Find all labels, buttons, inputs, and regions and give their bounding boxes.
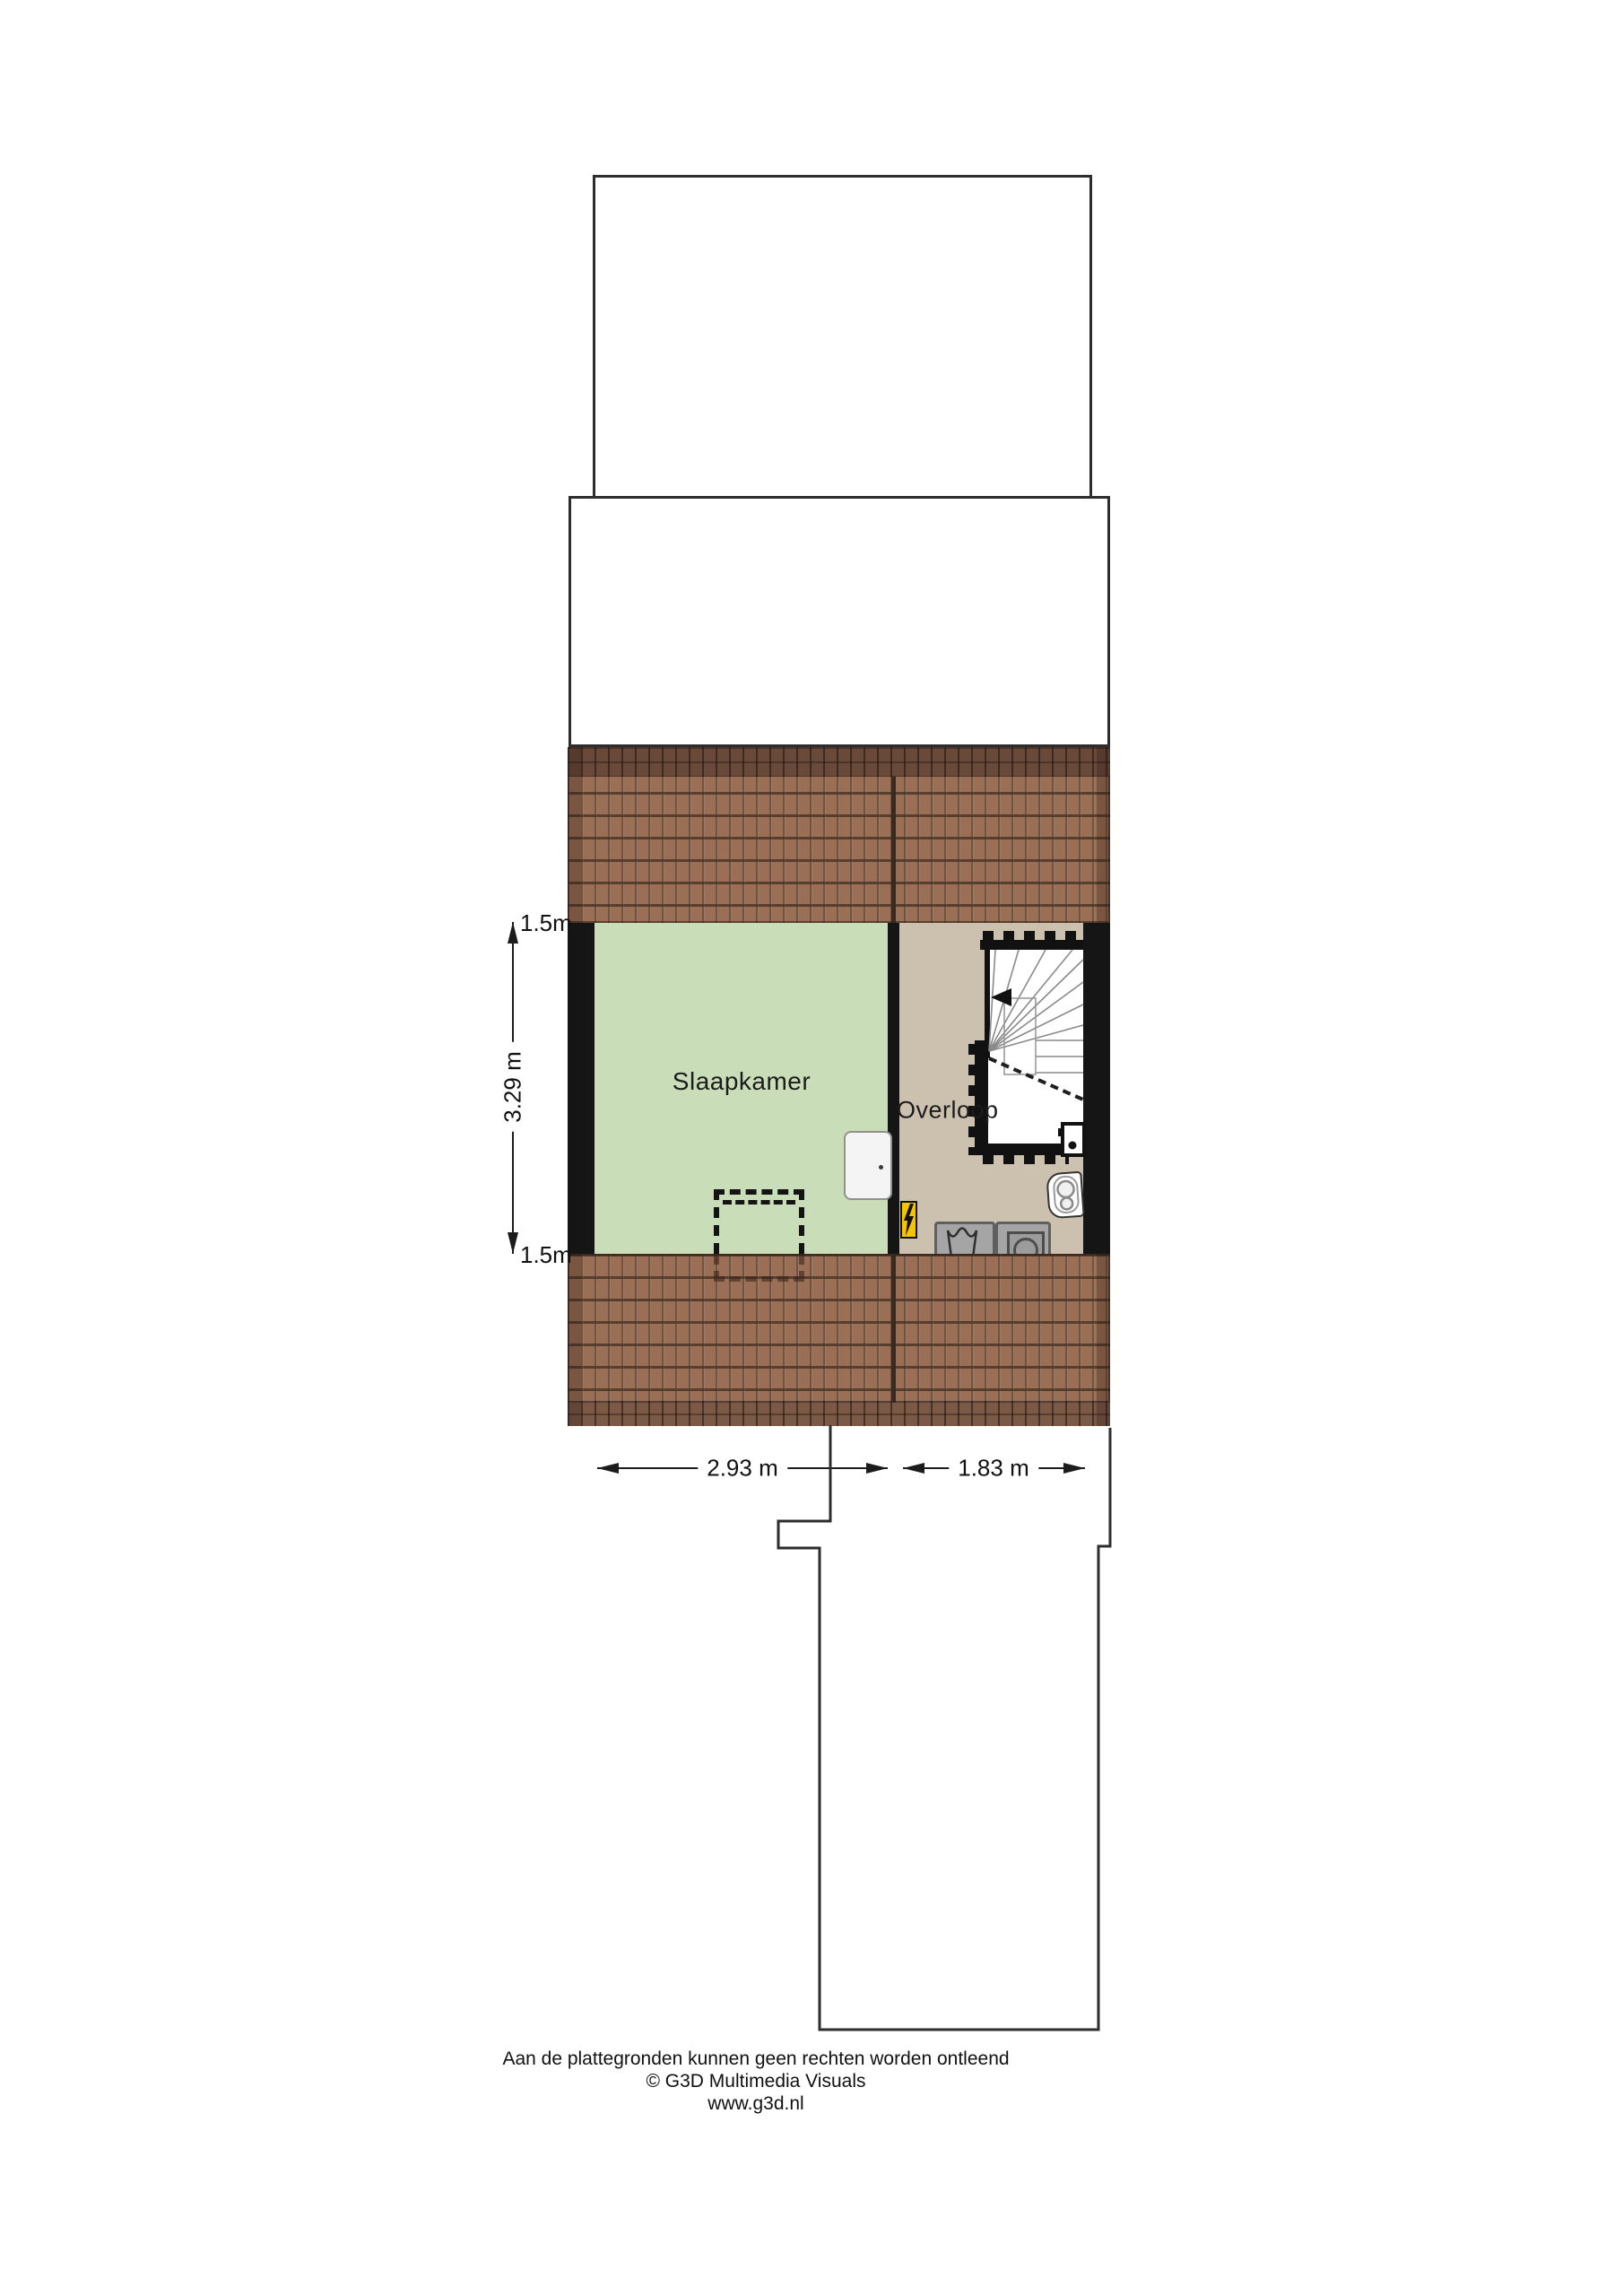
dimension-arrow-up-icon: [508, 922, 518, 944]
roof-edge-left: [568, 1254, 581, 1426]
roof-top-section: [568, 747, 1110, 923]
dimension-label-height: 3.29 m: [499, 1042, 527, 1132]
door-icon: [844, 1131, 892, 1200]
dimension-label-landing-width: 1.83 m: [949, 1455, 1038, 1483]
laundry-basin-icon: [934, 1222, 995, 1254]
footer-url: www.g3d.nl: [308, 2092, 1204, 2115]
roof-seam: [891, 1254, 896, 1403]
roof-seam: [891, 777, 896, 923]
footer-disclaimer: Aan de plattegronden kunnen geen rechten…: [308, 2048, 1204, 2070]
middle-outline-rect: [568, 496, 1110, 747]
footer: Aan de plattegronden kunnen geen rechten…: [308, 2048, 1204, 2115]
landing-label: Overloop: [897, 1097, 999, 1125]
dimension-label-top: 1.5m: [520, 909, 572, 937]
boiler-icon: [1046, 1171, 1084, 1220]
dimension-arrow-right-icon: [1063, 1463, 1085, 1474]
stairwell: [968, 931, 1116, 1166]
dimension-label-bedroom-width: 2.93 m: [698, 1455, 787, 1483]
dormer-dashed-outline: [714, 1189, 804, 1254]
toilet-icon: [1058, 1124, 1084, 1155]
dormer-dashed-outline-faded: [714, 1254, 804, 1282]
footer-copyright: © G3D Multimedia Visuals: [308, 2070, 1204, 2092]
roof-edge-right: [1097, 1254, 1110, 1426]
wall-left: [568, 923, 595, 1254]
door-handle: [879, 1165, 883, 1170]
floor-plan-page: Slaapkamer Overloop: [0, 0, 1623, 2296]
lightning-bolt-icon: [902, 1203, 916, 1237]
dimension-label-bottom: 1.5m: [520, 1241, 572, 1269]
roof-edge-right: [1097, 747, 1110, 923]
washing-machine-icon: [995, 1222, 1051, 1254]
dormer-inner-line: [723, 1200, 795, 1205]
roof-edge-left: [568, 747, 581, 923]
dimension-arrow-left-icon: [597, 1463, 619, 1474]
upper-outline-rect: [593, 175, 1092, 499]
roof-eaves-band: [568, 1401, 1110, 1426]
dimension-arrow-left-icon: [903, 1463, 924, 1474]
roof-bottom-section: [568, 1254, 1110, 1426]
roof-ridge-band: [568, 747, 1110, 777]
dimension-arrow-right-icon: [866, 1463, 888, 1474]
bedroom-label: Slaapkamer: [673, 1067, 811, 1096]
wall-between-rooms: [888, 923, 899, 1254]
electric-meter-box: [900, 1201, 917, 1239]
dimension-arrow-down-icon: [508, 1232, 518, 1254]
